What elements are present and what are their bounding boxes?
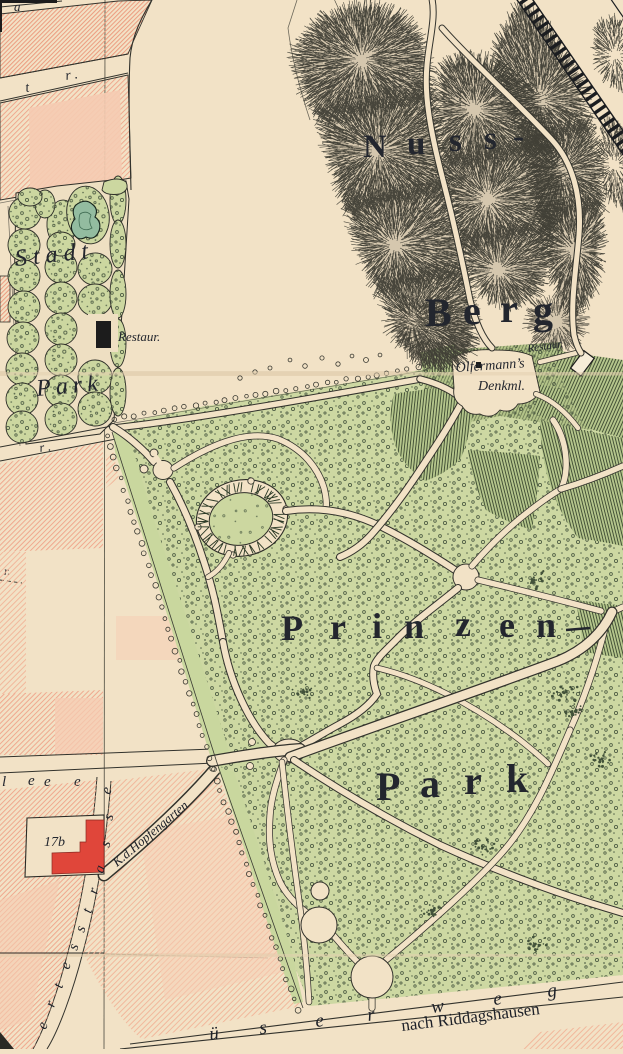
svg-text:Restaur.: Restaur. (117, 329, 160, 344)
svg-text:l: l (2, 774, 6, 790)
svg-text:P: P (376, 764, 400, 809)
svg-text:s: s (449, 123, 462, 159)
svg-text:e: e (499, 605, 515, 645)
svg-text:i: i (372, 606, 382, 646)
svg-text:P: P (281, 608, 303, 648)
svg-text:e: e (463, 288, 481, 333)
svg-text:17b: 17b (44, 835, 65, 850)
svg-text:B: B (425, 290, 452, 335)
svg-text:r: r (330, 607, 346, 647)
svg-text:Denkml.: Denkml. (477, 379, 525, 394)
svg-text:a: a (420, 761, 440, 806)
svg-text:z: z (455, 604, 471, 644)
svg-text:k: k (506, 756, 529, 801)
svg-text:g: g (533, 288, 553, 333)
svg-text:n: n (536, 605, 556, 645)
svg-text:-: - (513, 119, 524, 155)
svg-text:r: r (500, 286, 518, 331)
svg-text:u: u (407, 126, 425, 162)
svg-text:r .: r . (38, 438, 52, 455)
svg-text:N: N (363, 129, 387, 165)
svg-text:n: n (404, 606, 424, 646)
svg-text:s: s (484, 121, 497, 157)
svg-text:r .: r . (64, 67, 79, 84)
svg-text:r: r (464, 758, 482, 803)
